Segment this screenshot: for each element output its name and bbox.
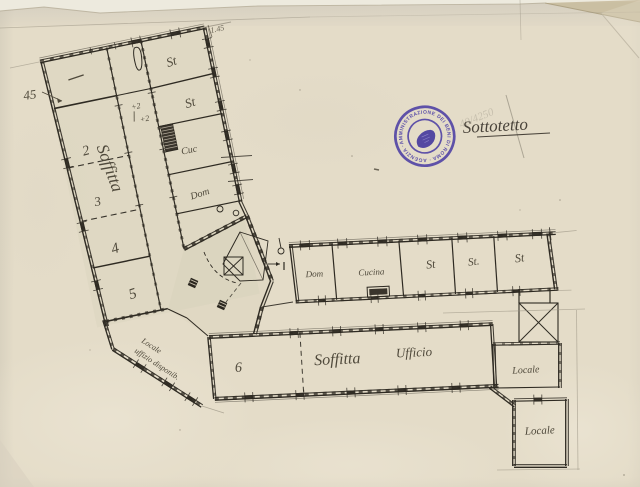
svg-text:Ufficio: Ufficio	[396, 344, 433, 361]
svg-text:Locale: Locale	[524, 424, 556, 438]
svg-text:6: 6	[235, 361, 243, 376]
svg-text:45: 45	[22, 86, 37, 103]
svg-text:St.: St.	[467, 255, 480, 268]
svg-text:+2: +2	[130, 101, 141, 112]
svg-text:Dom: Dom	[304, 268, 323, 279]
svg-text:Soffitta: Soffitta	[314, 350, 361, 369]
svg-text:+2: +2	[139, 114, 150, 125]
svg-text:Cucina: Cucina	[358, 266, 385, 277]
svg-text:Sottotetto: Sottotetto	[462, 115, 528, 137]
svg-text:Locale: Locale	[511, 364, 540, 376]
